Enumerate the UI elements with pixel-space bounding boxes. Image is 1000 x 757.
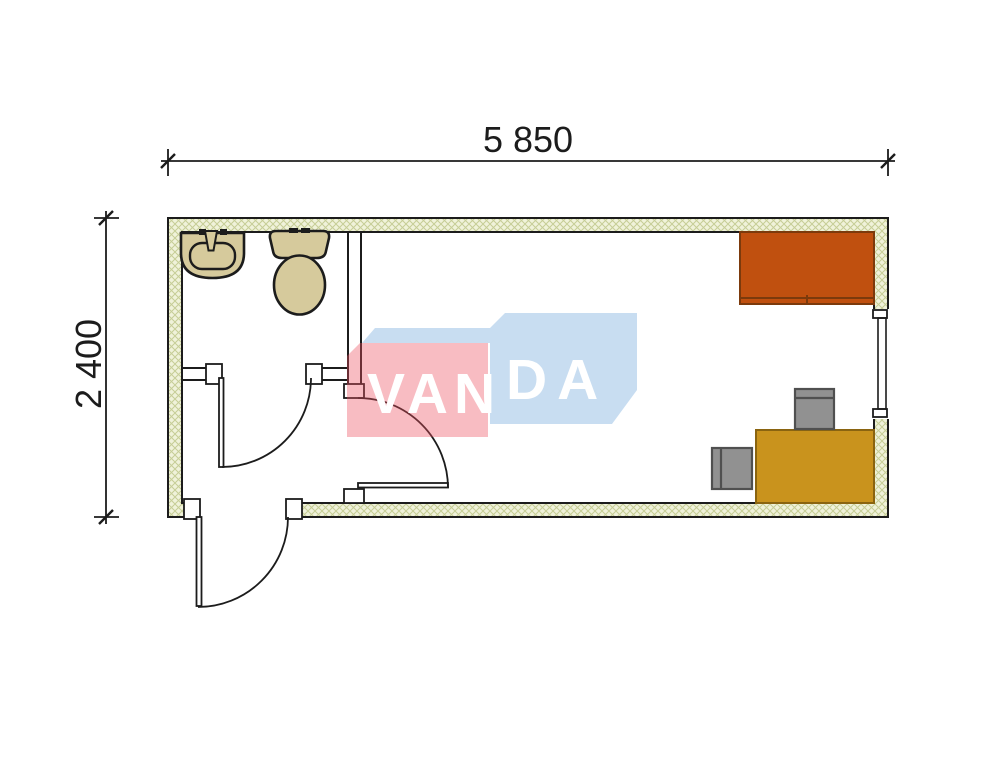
door-leaf (219, 378, 224, 467)
toilet-bowl (274, 256, 325, 315)
chair (795, 389, 834, 429)
toilet-button (289, 228, 298, 233)
door-jamb (306, 364, 322, 384)
dimension-width-label: 5 850 (378, 122, 678, 158)
watermark-text-van: VAN (367, 366, 501, 423)
window-cap-bottom (873, 409, 887, 417)
watermark-text-da: DA (506, 352, 608, 409)
chair-seat (712, 448, 752, 489)
bathroom-door (219, 378, 311, 467)
door-swing-arc (222, 378, 311, 467)
desk-top (756, 430, 874, 503)
toilet (270, 228, 329, 315)
window-opening (871, 309, 890, 419)
desk (756, 430, 874, 503)
entrance-door (197, 517, 289, 607)
door-leaf (197, 517, 202, 606)
door-jamb (184, 499, 200, 519)
toilet-button (301, 228, 310, 233)
chair (712, 448, 752, 489)
furniture (712, 232, 874, 503)
door-swing-arc (198, 517, 288, 607)
bathroom-door-opening (221, 366, 307, 382)
door-leaf (358, 483, 448, 488)
bathroom-fixtures (181, 228, 329, 315)
door-jamb (344, 489, 364, 503)
sink-tap-detail (220, 229, 227, 235)
toilet-tank (270, 231, 329, 258)
bed (740, 232, 874, 304)
window-cap-top (873, 310, 887, 318)
floor-plan-canvas: 5 850 2 400 VAN DA (0, 0, 1000, 757)
dimension-height-label: 2 400 (71, 319, 107, 409)
sink (181, 229, 244, 278)
bed-body (740, 232, 874, 304)
entrance-door-opening (200, 500, 287, 519)
chair-seat (795, 389, 834, 429)
door-jamb (286, 499, 302, 519)
door-frames (184, 364, 364, 519)
